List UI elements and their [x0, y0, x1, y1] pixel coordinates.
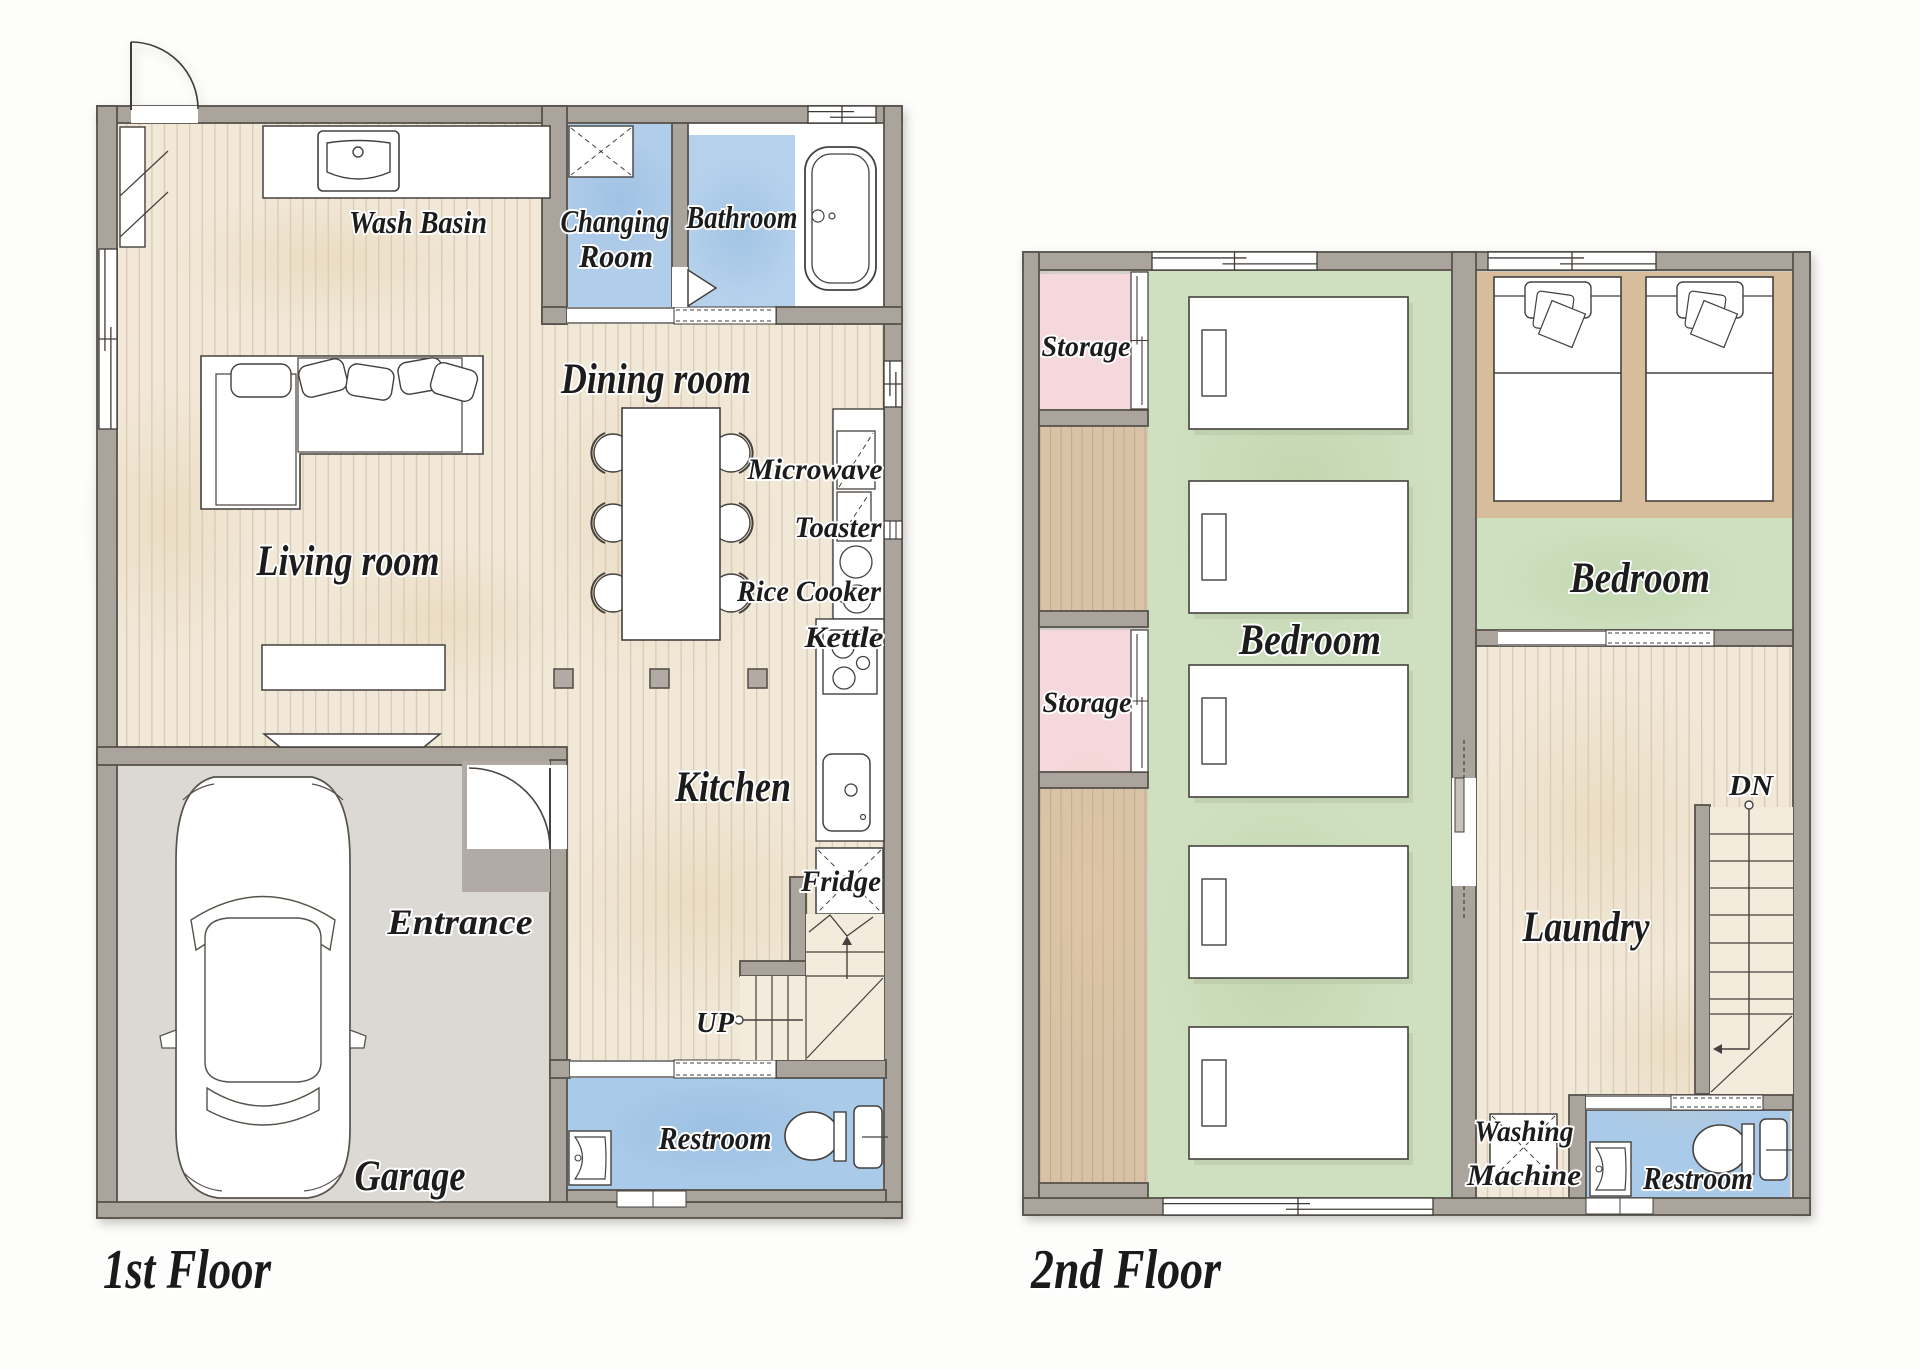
- svg-text:Kettle: Kettle: [803, 621, 883, 654]
- svg-text:Restroom: Restroom: [658, 1120, 772, 1156]
- svg-text:Bedroom: Bedroom: [1238, 617, 1381, 664]
- svg-text:Fridge: Fridge: [800, 865, 881, 898]
- svg-text:Bedroom: Bedroom: [1569, 555, 1710, 602]
- svg-text:UP: UP: [696, 1008, 735, 1039]
- svg-text:Entrance: Entrance: [386, 902, 532, 942]
- svg-text:Wash Basin: Wash Basin: [349, 204, 487, 240]
- svg-text:Microwave: Microwave: [747, 453, 883, 486]
- svg-text:Dining room: Dining room: [560, 356, 751, 403]
- svg-text:Washing: Washing: [1475, 1115, 1574, 1148]
- svg-text:Changing: Changing: [561, 203, 670, 239]
- svg-text:Machine: Machine: [1466, 1159, 1581, 1192]
- svg-text:Garage: Garage: [355, 1153, 466, 1200]
- svg-text:1st Floor: 1st Floor: [103, 1239, 272, 1301]
- svg-text:Living room: Living room: [256, 538, 440, 585]
- svg-text:Storage: Storage: [1043, 686, 1132, 719]
- svg-text:Rice Cooker: Rice Cooker: [736, 575, 881, 608]
- svg-text:Restroom: Restroom: [1642, 1160, 1753, 1196]
- svg-text:Bathroom: Bathroom: [686, 199, 798, 235]
- svg-text:Room: Room: [578, 238, 653, 274]
- svg-text:Toaster: Toaster: [795, 511, 882, 544]
- svg-text:Kitchen: Kitchen: [674, 764, 791, 811]
- svg-text:2nd Floor: 2nd Floor: [1030, 1239, 1222, 1301]
- svg-text:Storage: Storage: [1042, 330, 1131, 363]
- svg-text:DN: DN: [1728, 771, 1775, 802]
- svg-text:Laundry: Laundry: [1522, 904, 1651, 951]
